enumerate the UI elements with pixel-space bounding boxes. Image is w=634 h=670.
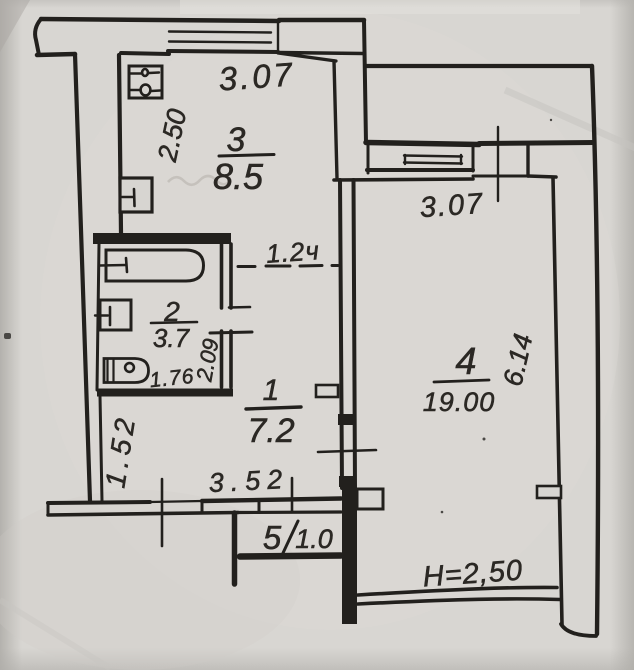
svg-text:1.0: 1.0 [295, 524, 333, 554]
svg-text:3.7: 3.7 [153, 323, 191, 353]
svg-text:7.2: 7.2 [247, 412, 294, 450]
svg-text:3.52: 3.52 [208, 464, 290, 498]
svg-text:5: 5 [263, 519, 282, 556]
svg-text:1: 1 [263, 374, 280, 407]
svg-text:1.2ч: 1.2ч [265, 235, 321, 269]
svg-text:19.00: 19.00 [423, 387, 496, 417]
svg-text:3: 3 [227, 121, 246, 159]
svg-text:3.07: 3.07 [419, 188, 486, 224]
svg-text:4: 4 [455, 341, 476, 383]
svg-text:1.76: 1.76 [148, 365, 195, 393]
svg-text:3.07: 3.07 [217, 55, 296, 97]
svg-text:8.5: 8.5 [213, 156, 264, 197]
